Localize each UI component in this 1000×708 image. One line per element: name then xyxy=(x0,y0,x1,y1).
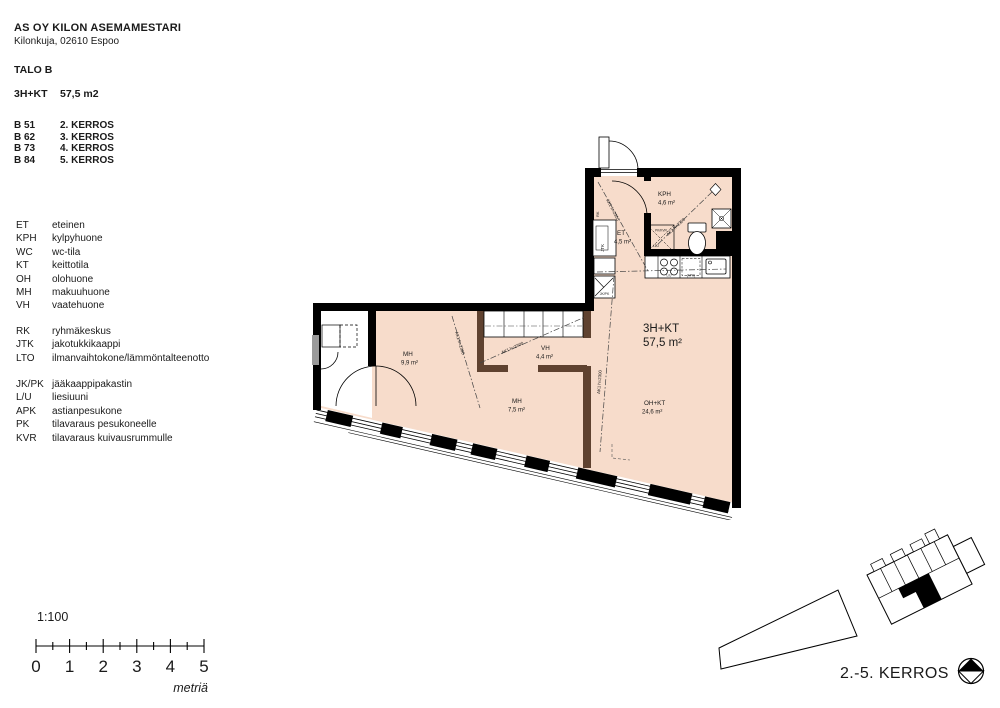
floor-range-label: 2.-5. KERROS xyxy=(840,665,949,683)
unit-row: B 623. KERROS xyxy=(14,132,114,144)
legend-abbr: OH xyxy=(16,273,52,286)
legend-row: LTOilmanvaihtokone/lämmöntalteenotto xyxy=(16,352,209,365)
legend-label: tilavaraus kuivausrummulle xyxy=(52,433,173,444)
room-area-mh1: 9,9 m² xyxy=(401,361,418,367)
unit-id: B 84 xyxy=(14,155,60,167)
legend-row: PKtilavaraus pesukoneelle xyxy=(16,418,173,431)
legend-row: JK/PKjääkaappipakastin xyxy=(16,378,173,391)
unit-floor: 2. KERROS xyxy=(60,120,114,131)
room-label-mh2: MH xyxy=(512,398,522,405)
scale-tick: 2 xyxy=(98,657,107,676)
legend-abbr: JK/PK xyxy=(16,378,52,391)
rk-label: RK xyxy=(595,211,600,217)
legend-abbr: L/U xyxy=(16,391,52,404)
room-label-kph: KPH xyxy=(658,191,671,198)
keyplan-building xyxy=(862,525,990,624)
legend-row: KPHkylpyhuone xyxy=(16,232,110,245)
scale-tick: 0 xyxy=(31,657,40,676)
entry-door xyxy=(599,137,638,176)
unit-id: B 51 xyxy=(14,120,60,132)
lto-label: LTO xyxy=(653,244,659,248)
legend-abbr: KVR xyxy=(16,432,52,445)
legend-abbr: RK xyxy=(16,325,52,338)
dishwasher-label: (APK) xyxy=(687,274,696,278)
jtk-label: JTK xyxy=(600,244,605,252)
legend-label: makuuhuone xyxy=(52,287,110,298)
room-label-vh: VH xyxy=(541,345,550,352)
floor-plan-sheet: AS OY KILON ASEMAMESTARI Kilonkuja, 0261… xyxy=(0,0,1000,708)
legend-label: ilmanvaihtokone/lämmöntalteenotto xyxy=(52,353,209,364)
legend-abbr: APK xyxy=(16,405,52,418)
legend-abbr: ET xyxy=(16,219,52,232)
legend-label: ryhmäkeskus xyxy=(52,326,111,337)
scale-tick: 4 xyxy=(166,657,175,676)
hall-cabinets xyxy=(593,220,616,298)
legend-rooms: ETeteinen KPHkylpyhuone WCwc-tila KTkeit… xyxy=(16,219,110,313)
room-area-mh2: 7,5 m² xyxy=(508,408,525,414)
legend-abbr: JTK xyxy=(16,338,52,351)
legend-label: keittotila xyxy=(52,260,89,271)
scale-bar: 0 1 2 3 4 5 metriä xyxy=(28,632,228,704)
legend-technical: RKryhmäkeskus JTKjakotukkikaappi LTOilma… xyxy=(16,325,209,365)
stove-label: L/U xyxy=(667,274,673,278)
legend-row: KVRtilavaraus kuivausrummulle xyxy=(16,432,173,445)
apartment-type-label: 3H+KT xyxy=(643,323,679,335)
apartment-type: 3H+KT xyxy=(14,88,48,100)
unit-floor: 4. KERROS xyxy=(60,143,114,154)
legend-row: KTkeittotila xyxy=(16,259,110,272)
company-name: AS OY KILON ASEMAMESTARI xyxy=(14,22,181,34)
apartment-area-label: 57,5 m² xyxy=(643,337,682,349)
floor-plan-drawing: KPH 4,6 m² ET 4,5 m² 3H+KT 57,5 m² OH+KT… xyxy=(295,130,750,520)
unit-floor: 5. KERROS xyxy=(60,155,114,166)
legend-row: OHolohuone xyxy=(16,273,110,286)
unit-row: B 734. KERROS xyxy=(14,143,114,155)
legend-abbr: KT xyxy=(16,259,52,272)
room-area-ohkt: 24,6 m² xyxy=(642,410,662,416)
building-name: TALO B xyxy=(14,64,52,76)
scale-tick: 5 xyxy=(199,657,208,676)
north-arrow-icon xyxy=(959,659,984,684)
toilet xyxy=(688,223,706,255)
legend-abbr: LTO xyxy=(16,352,52,365)
legend-label: jääkaappipakastin xyxy=(52,379,132,390)
legend-label: eteinen xyxy=(52,220,85,231)
legend-abbr: WC xyxy=(16,246,52,259)
unit-row: B 845. KERROS xyxy=(14,155,114,167)
room-area-vh: 4,4 m² xyxy=(536,355,553,361)
unit-floor: 3. KERROS xyxy=(60,132,114,143)
washbasin xyxy=(712,209,731,228)
room-label-mh1: MH xyxy=(403,351,413,358)
legend-abbr: VH xyxy=(16,299,52,312)
unit-row: B 512. KERROS xyxy=(14,120,114,132)
room-label-ohkt: OH+KT xyxy=(644,400,665,407)
unit-id: B 73 xyxy=(14,143,60,155)
legend-abbr: PK xyxy=(16,418,52,431)
legend-label: astianpesukone xyxy=(52,406,122,417)
scale-tick: 3 xyxy=(132,657,141,676)
scale-unit: metriä xyxy=(173,681,208,695)
legend-row: RKryhmäkeskus xyxy=(16,325,209,338)
legend-row: WCwc-tila xyxy=(16,246,110,259)
scale-tick: 1 xyxy=(65,657,74,676)
legend-appliances: JK/PKjääkaappipakastin L/Uliesiuuni APKa… xyxy=(16,378,173,445)
legend-row: VHvaatehuone xyxy=(16,299,110,312)
adjacent-room-floor xyxy=(317,309,372,418)
room-label-et: ET xyxy=(617,230,625,237)
scale-bar-lines xyxy=(36,639,204,653)
legend-row: L/Uliesiuuni xyxy=(16,391,173,404)
room-area-kph: 4,6 m² xyxy=(658,201,675,207)
legend-row: ETeteinen xyxy=(16,219,110,232)
legend-row: APKastianpesukone xyxy=(16,405,173,418)
legend-label: liesiuuni xyxy=(52,392,88,403)
unit-list: B 512. KERROS B 623. KERROS B 734. KERRO… xyxy=(14,120,114,166)
legend-abbr: MH xyxy=(16,286,52,299)
legend-row: MHmakuuhuone xyxy=(16,286,110,299)
washer-dryer-label: PK/KVR xyxy=(655,229,667,233)
legend-label: olohuone xyxy=(52,274,93,285)
apartment-type-row: 3H+KT 57,5 m2 xyxy=(14,88,48,100)
legend-row: JTKjakotukkikaappi xyxy=(16,338,209,351)
apartment-area: 57,5 m2 xyxy=(60,88,99,100)
legend-label: kylpyhuone xyxy=(52,233,103,244)
stair-side-opening xyxy=(312,335,319,365)
fridge-label: JK/PK xyxy=(600,292,610,296)
room-area-et: 4,5 m² xyxy=(614,240,631,246)
unit-id: B 62 xyxy=(14,132,60,144)
company-address: Kilonkuja, 02610 Espoo xyxy=(14,36,119,47)
scale-tick-numbers: 0 1 2 3 4 5 xyxy=(31,657,208,676)
scale-ratio: 1:100 xyxy=(37,610,68,624)
legend-label: vaatehuone xyxy=(52,300,104,311)
legend-label: wc-tila xyxy=(52,247,80,258)
keyplan-neighbor-building xyxy=(719,590,857,669)
legend-abbr: KPH xyxy=(16,232,52,245)
legend-label: jakotukkikaappi xyxy=(52,339,120,350)
legend-label: tilavaraus pesukoneelle xyxy=(52,419,157,430)
